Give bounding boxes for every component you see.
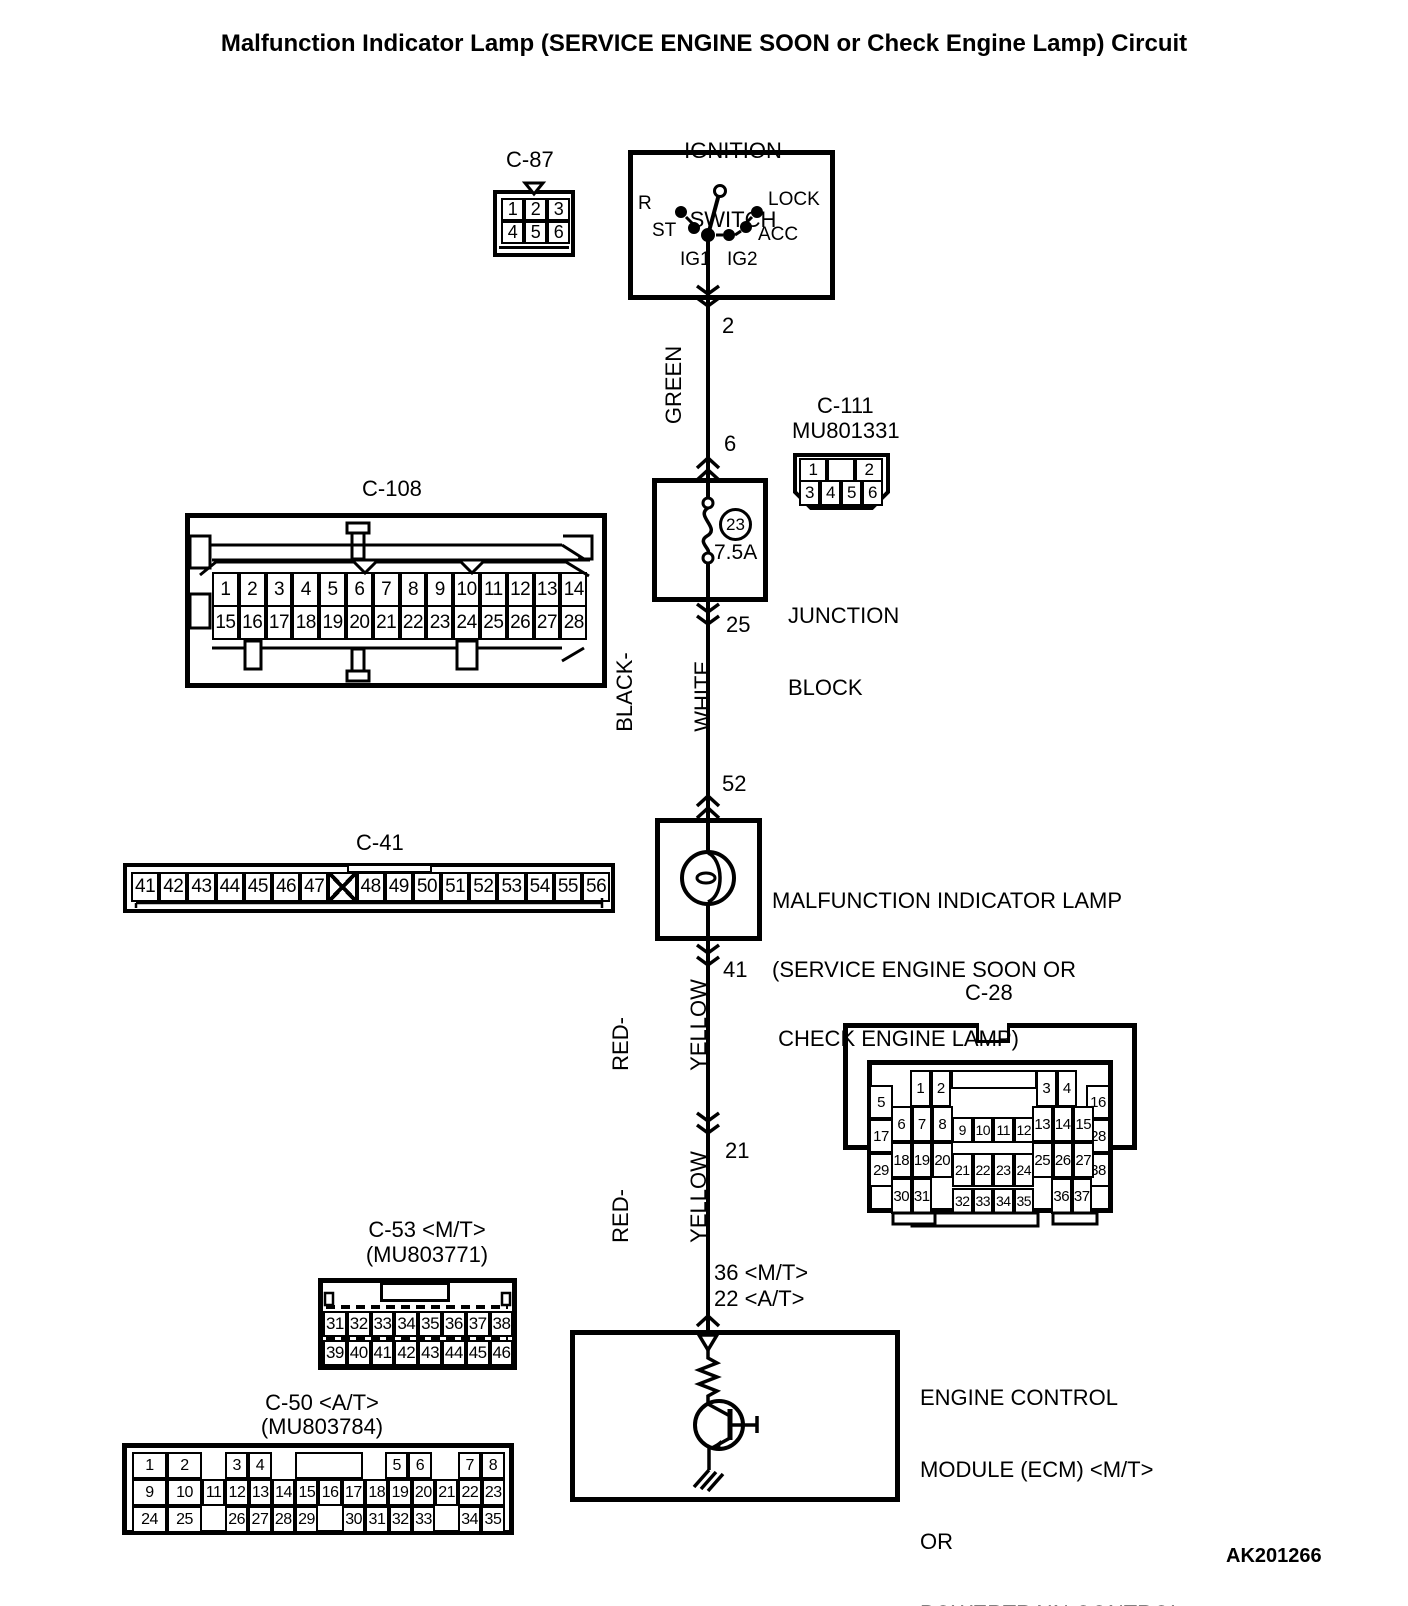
pin-cell: 19 xyxy=(319,605,346,640)
mil-label-line2: (SERVICE ENGINE SOON OR xyxy=(772,958,1122,981)
pin-cell: 29 xyxy=(295,1506,318,1533)
pin-cell: 34 xyxy=(458,1506,481,1533)
connector-c108-label: C-108 xyxy=(362,477,422,501)
connector-c111-part-number: MU801331 xyxy=(792,419,900,443)
connector-c28-row4-left: 3031 xyxy=(891,1178,932,1214)
pin-cell: 1 xyxy=(799,458,827,482)
wire-color-black-white: BLACK- WHITE xyxy=(560,652,768,731)
pin-cell: 2 xyxy=(167,1452,202,1479)
ecm-label-line2: MODULE (ECM) <M/T> xyxy=(920,1458,1182,1482)
pin-cell: 51 xyxy=(441,872,469,902)
pin-cell: 20 xyxy=(412,1479,435,1506)
pin-cell: 40 xyxy=(347,1340,371,1366)
pin-cell: 7 xyxy=(458,1452,481,1479)
pin-cell: 1 xyxy=(501,198,524,221)
connector-c53-pin-row-2: 3940414243444546 xyxy=(323,1340,513,1366)
fuse-number-badge: 23 xyxy=(719,508,752,541)
pin-cell: 24 xyxy=(453,605,480,640)
mil-label-line3: CHECK ENGINE LAMP) xyxy=(772,1027,1122,1050)
pin-cell: 1 xyxy=(132,1452,167,1479)
pin-cell: 27 xyxy=(1073,1142,1094,1178)
pin-cell: 42 xyxy=(394,1340,418,1366)
junction-block-label: JUNCTION BLOCK xyxy=(788,556,899,748)
pin-cell: 46 xyxy=(272,872,300,902)
pin-cell: 31 xyxy=(323,1311,347,1337)
pin-cell: 21 xyxy=(373,605,400,640)
connector-c87-label: C-87 xyxy=(506,148,554,172)
connector-c50-row2-g1: 910 xyxy=(132,1479,202,1506)
pin-cell: 20 xyxy=(346,605,373,640)
pin-cell: 18 xyxy=(891,1142,912,1178)
wire-pin-2: 2 xyxy=(722,314,734,338)
wire-color-red-yellow-1-line2: YELLOW xyxy=(686,979,712,1071)
connector-c50-row1-g4: 78 xyxy=(458,1452,505,1479)
wire-pin-25: 25 xyxy=(726,613,750,637)
pin-cell: 28 xyxy=(560,605,587,640)
pin-cell: 9 xyxy=(952,1117,973,1143)
pin-cell: 43 xyxy=(418,1340,442,1366)
pin-cell: 35 xyxy=(481,1506,504,1533)
blank-pin-cell xyxy=(827,458,855,482)
pin-cell: 36 xyxy=(1051,1178,1072,1214)
pin-cell: 23 xyxy=(993,1153,1014,1187)
pin-cell: 6 xyxy=(408,1452,431,1479)
junction-block-label-line2: BLOCK xyxy=(788,676,899,700)
pin-cell: 6 xyxy=(891,1106,912,1142)
switch-position-st: ST xyxy=(652,219,676,243)
pin-cell: 5 xyxy=(385,1452,408,1479)
ecm-label-line1: ENGINE CONTROL xyxy=(920,1386,1182,1410)
pin-cell: 35 xyxy=(1014,1188,1035,1214)
pin-cell: 26 xyxy=(507,605,534,640)
connector-c50-row3-g3: 30313233 xyxy=(342,1506,435,1533)
pin-cell: 17 xyxy=(869,1119,893,1153)
pin-cell: 24 xyxy=(132,1506,167,1533)
connector-c87-pin-row-2: 456 xyxy=(501,221,570,244)
pin-cell: 49 xyxy=(385,872,413,902)
ecm-box xyxy=(570,1330,900,1502)
pin-cell: 31 xyxy=(912,1178,933,1214)
junction-block-box xyxy=(652,478,768,602)
pin-cell: 10 xyxy=(453,572,480,607)
pin-cell: 3 xyxy=(547,198,570,221)
pin-cell: 31 xyxy=(365,1506,388,1533)
pin-cell: 14 xyxy=(1053,1106,1074,1142)
connector-c50-row3-g4: 3435 xyxy=(458,1506,505,1533)
connector-c53-seal-strip xyxy=(326,1305,508,1309)
switch-position-ig2: IG2 xyxy=(727,248,758,272)
pin-cell: 5 xyxy=(524,221,547,244)
pin-cell: 9 xyxy=(426,572,453,607)
pin-cell: 16 xyxy=(318,1479,341,1506)
pin-cell: 4 xyxy=(248,1452,271,1479)
pin-cell: 18 xyxy=(365,1479,388,1506)
pin-cell: 25 xyxy=(1032,1142,1053,1178)
pin-cell: 27 xyxy=(248,1506,271,1533)
pin-cell: 4 xyxy=(820,480,841,506)
wiring-diagram-page: Malfunction Indicator Lamp (SERVICE ENGI… xyxy=(0,0,1408,1606)
pin-cell: 35 xyxy=(418,1311,442,1337)
pin-cell: 37 xyxy=(466,1311,490,1337)
wire-color-green: GREEN xyxy=(661,346,687,424)
connector-c111-pin-row-1: 12 xyxy=(799,458,883,482)
connector-c53-tab xyxy=(380,1282,450,1302)
pin-cell: 3 xyxy=(266,572,293,607)
mil-box xyxy=(655,818,762,941)
pin-cell: 44 xyxy=(442,1340,466,1366)
pin-cell: 23 xyxy=(426,605,453,640)
connector-c87-inner-line xyxy=(499,246,569,249)
pin-cell: 30 xyxy=(891,1178,912,1214)
connector-c28-row3-left: 181920 xyxy=(891,1142,953,1178)
pin-cell: 4 xyxy=(501,221,524,244)
connector-c53-label: C-53 <M/T> xyxy=(327,1218,527,1242)
pin-cell: 13 xyxy=(534,572,561,607)
wire-color-red-yellow-2-line2: YELLOW xyxy=(686,1151,712,1243)
pin-cell: 15 xyxy=(295,1479,318,1506)
junction-block-label-line1: JUNCTION xyxy=(788,604,899,628)
pin-cell: 32 xyxy=(389,1506,412,1533)
pin-cell: 13 xyxy=(249,1479,272,1506)
pin-cell: 32 xyxy=(347,1311,371,1337)
ignition-switch-label-line1: IGNITION xyxy=(633,139,833,162)
pin-cell: 11 xyxy=(993,1117,1014,1143)
pin-cell: 45 xyxy=(244,872,272,902)
pin-cell: 6 xyxy=(346,572,373,607)
connector-c28-left-column: 51729 xyxy=(869,1085,893,1187)
pin-cell: 21 xyxy=(952,1153,973,1187)
pin-cell: 33 xyxy=(973,1188,994,1214)
connector-c50-row3-g1: 2425 xyxy=(132,1506,202,1533)
connector-c50-label: C-50 <A/T> xyxy=(222,1391,422,1415)
wire-color-black-white-line2: WHITE xyxy=(690,652,716,731)
pin-cell: 10 xyxy=(973,1117,994,1143)
pin-cell: 16 xyxy=(239,605,266,640)
pin-cell: 2 xyxy=(855,458,883,482)
pin-cell: 53 xyxy=(497,872,525,902)
pin-cell: 5 xyxy=(841,480,862,506)
switch-position-acc: ACC xyxy=(758,223,798,247)
connector-c53-pin-row-1: 3132333435363738 xyxy=(323,1311,513,1337)
pin-cell: 13 xyxy=(1032,1106,1053,1142)
pin-cell: 9 xyxy=(132,1479,167,1506)
connector-c41-pin-row: 41424344454647484950515253545556 xyxy=(131,872,610,902)
switch-position-lock: LOCK xyxy=(768,188,820,212)
pin-cell: 48 xyxy=(357,872,385,902)
ecm-label: ENGINE CONTROL MODULE (ECM) <M/T> OR POW… xyxy=(920,1338,1182,1606)
pin-cell: 30 xyxy=(342,1506,365,1533)
pin-cell: 38 xyxy=(490,1311,514,1337)
connector-c108-pin-row-1: 1234567891011121314 xyxy=(212,572,587,607)
pin-cell: 8 xyxy=(481,1452,504,1479)
pin-cell: 33 xyxy=(371,1311,395,1337)
pin-cell: 26 xyxy=(1053,1142,1074,1178)
connector-c28-row3-mid: 21222324 xyxy=(952,1153,1034,1187)
pin-cell: 33 xyxy=(412,1506,435,1533)
pin-cell: 5 xyxy=(319,572,346,607)
pin-cell: 41 xyxy=(371,1340,395,1366)
pin-cell: 8 xyxy=(932,1106,953,1142)
pin-cell: 12 xyxy=(507,572,534,607)
pin-cell: 45 xyxy=(466,1340,490,1366)
pin-cell: 1 xyxy=(212,572,239,607)
switch-position-r: R xyxy=(638,192,652,216)
pin-cell: 39 xyxy=(323,1340,347,1366)
wire-pin-22-at: 22 <A/T> xyxy=(714,1287,805,1311)
pin-cell: 25 xyxy=(480,605,507,640)
pin-cell: 15 xyxy=(212,605,239,640)
pin-cell: 56 xyxy=(582,872,610,902)
connector-c28-row4-mid: 32333435 xyxy=(952,1188,1034,1214)
connector-c50-row2-g2: 11121314151617181920212223 xyxy=(202,1479,505,1506)
pin-cell: 7 xyxy=(373,572,400,607)
pin-cell: 23 xyxy=(482,1479,505,1506)
connector-c28-row4-right: 3637 xyxy=(1051,1178,1092,1214)
connector-c108-pin-row-2: 1516171819202122232425262728 xyxy=(212,605,587,640)
pin-cell: 29 xyxy=(869,1153,893,1187)
wire-pin-52: 52 xyxy=(722,772,746,796)
pin-cell: 12 xyxy=(1014,1117,1035,1143)
pin-cell: 3 xyxy=(225,1452,248,1479)
pin-cell: 20 xyxy=(932,1142,953,1178)
fuse-rating-label: 7.5A xyxy=(714,541,757,565)
pin-cell: 26 xyxy=(225,1506,248,1533)
pin-cell: 34 xyxy=(394,1311,418,1337)
pin-cell: 22 xyxy=(458,1479,481,1506)
connector-c50-row1-g2: 34 xyxy=(225,1452,272,1479)
pin-cell: 11 xyxy=(480,572,507,607)
pin-cell: 19 xyxy=(388,1479,411,1506)
pin-cell: 25 xyxy=(167,1506,202,1533)
connector-c28-row2-mid: 9101112 xyxy=(952,1117,1034,1143)
pin-cell: 17 xyxy=(342,1479,365,1506)
pin-cell: 14 xyxy=(272,1479,295,1506)
pin-cell: 3 xyxy=(799,480,820,506)
wire-color-red-yellow-2: RED- YELLOW xyxy=(556,1151,764,1243)
wire-color-red-yellow-1: RED- YELLOW xyxy=(556,979,764,1071)
connector-c50-blank-slot xyxy=(295,1452,363,1479)
pin-cell: 32 xyxy=(952,1188,973,1214)
connector-c28-row3-right: 252627 xyxy=(1032,1142,1094,1178)
ecm-label-line4: POWERTRAIN CONTROL xyxy=(920,1602,1182,1606)
pin-cell: 21 xyxy=(435,1479,458,1506)
pin-cell: 27 xyxy=(534,605,561,640)
connector-c111-pin-row-2: 3456 xyxy=(799,480,883,506)
pin-cell: 54 xyxy=(526,872,554,902)
pin-cell: 7 xyxy=(912,1106,933,1142)
pin-cell: 46 xyxy=(490,1340,514,1366)
pin-cell: 19 xyxy=(912,1142,933,1178)
pin-cell: 4 xyxy=(292,572,319,607)
connector-c111-label: C-111 xyxy=(817,394,874,418)
pin-cell: 8 xyxy=(400,572,427,607)
pin-cell: 22 xyxy=(973,1153,994,1187)
pin-cell: 34 xyxy=(993,1188,1014,1214)
pin-cell: 50 xyxy=(413,872,441,902)
wire-color-red-yellow-2-line1: RED- xyxy=(608,1151,634,1243)
blocked-pin-cell xyxy=(328,872,356,902)
connector-c50-row1-g1: 12 xyxy=(132,1452,202,1479)
pin-cell: 24 xyxy=(1014,1153,1035,1187)
pin-cell: 37 xyxy=(1072,1178,1093,1214)
connector-c41-label: C-41 xyxy=(356,831,404,855)
page-title: Malfunction Indicator Lamp (SERVICE ENGI… xyxy=(0,30,1408,58)
wire-pin-6: 6 xyxy=(724,432,736,456)
pin-cell: 52 xyxy=(469,872,497,902)
pin-cell: 18 xyxy=(292,605,319,640)
pin-cell: 55 xyxy=(554,872,582,902)
pin-cell: 2 xyxy=(524,198,547,221)
connector-c53-part-number: (MU803771) xyxy=(327,1243,527,1267)
wire-color-red-yellow-1-line1: RED- xyxy=(608,979,634,1071)
switch-position-ig1: IG1 xyxy=(680,248,711,272)
pin-cell: 10 xyxy=(167,1479,202,1506)
pin-cell: 17 xyxy=(266,605,293,640)
mil-label: MALFUNCTION INDICATOR LAMP (SERVICE ENGI… xyxy=(772,843,1122,1096)
connector-c50-part-number: (MU803784) xyxy=(222,1415,422,1439)
wire-pin-36-mt: 36 <M/T> xyxy=(714,1261,808,1285)
wire-color-black-white-line1: BLACK- xyxy=(612,652,638,731)
connector-c50-row1-g3: 56 xyxy=(385,1452,432,1479)
connector-c28-row2-left: 678 xyxy=(891,1106,953,1142)
pin-cell: 43 xyxy=(187,872,215,902)
pin-cell: 42 xyxy=(159,872,187,902)
c28-housing-details xyxy=(893,1213,1097,1226)
ecm-label-line3: OR xyxy=(920,1530,1182,1554)
pin-cell: 41 xyxy=(131,872,159,902)
connector-c28-row2-right: 131415 xyxy=(1032,1106,1094,1142)
pin-cell: 36 xyxy=(442,1311,466,1337)
pin-cell: 6 xyxy=(547,221,570,244)
pin-cell: 15 xyxy=(1073,1106,1094,1142)
pin-cell: 11 xyxy=(202,1479,225,1506)
connector-c87-pin-row-1: 123 xyxy=(501,198,570,221)
pin-cell: 22 xyxy=(400,605,427,640)
pin-cell: 44 xyxy=(216,872,244,902)
pin-cell: 12 xyxy=(225,1479,248,1506)
pin-cell: 47 xyxy=(300,872,328,902)
pin-cell: 14 xyxy=(560,572,587,607)
pin-cell: 2 xyxy=(239,572,266,607)
mil-label-line1: MALFUNCTION INDICATOR LAMP xyxy=(772,889,1122,912)
connector-c50-row3-g2: 26272829 xyxy=(225,1506,318,1533)
diagram-code: AK201266 xyxy=(1226,1544,1322,1568)
pin-cell: 28 xyxy=(272,1506,295,1533)
pin-cell: 6 xyxy=(862,480,883,506)
